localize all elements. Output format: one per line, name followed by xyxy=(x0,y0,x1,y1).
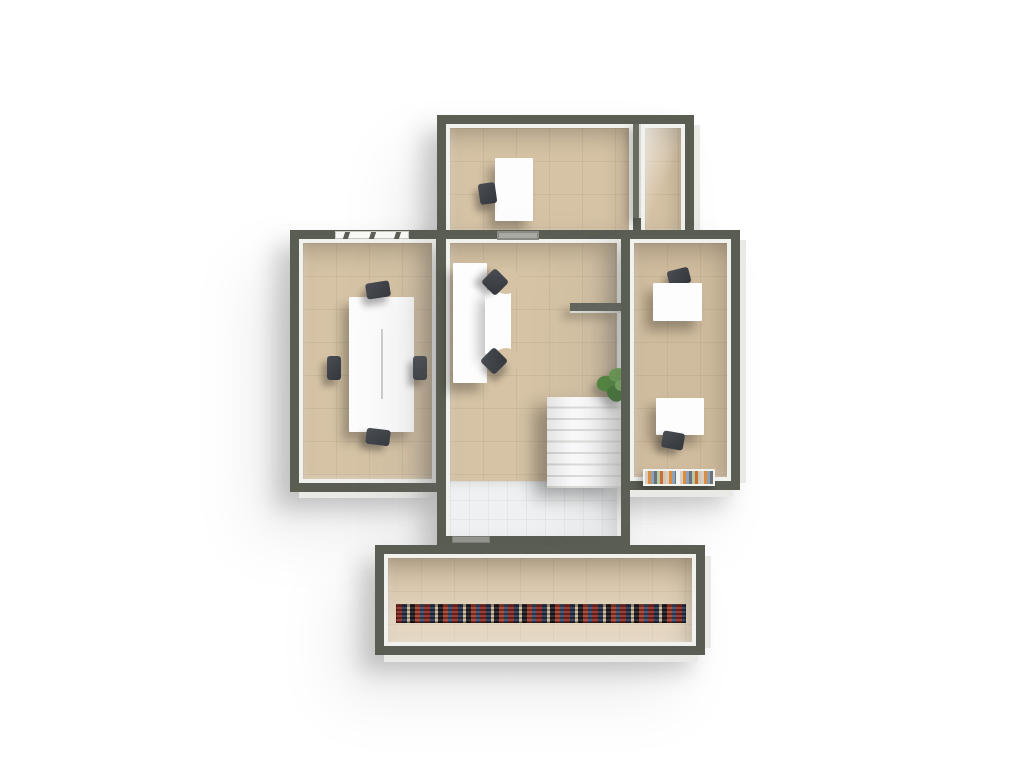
right-office-desk-north xyxy=(653,283,702,321)
block-top-office xyxy=(437,115,694,245)
top-office-desk xyxy=(495,158,533,221)
conference-chair-east xyxy=(413,356,427,380)
book-row-1 xyxy=(645,471,676,484)
wall-outer-face xyxy=(694,125,700,237)
conference-table xyxy=(349,297,414,432)
block-central-hall xyxy=(437,230,630,545)
right-office-desk-south xyxy=(656,398,704,435)
conference-chair-west xyxy=(327,356,341,380)
workstation-desk-extension xyxy=(485,290,511,354)
book-shelf xyxy=(643,469,715,486)
block-terrace xyxy=(375,545,705,655)
wall-outer-face xyxy=(705,556,711,648)
terrace-runner-rug xyxy=(396,604,686,623)
right-office-floor xyxy=(630,239,731,481)
wall-outer-face xyxy=(630,490,733,497)
meeting-room-window xyxy=(335,231,409,239)
left-meeting-room-floor xyxy=(299,239,436,483)
wall-outer-face xyxy=(740,240,746,483)
entry-tile-floor xyxy=(450,481,617,536)
top-office-chair xyxy=(478,182,498,205)
staircase xyxy=(547,397,621,488)
top-office-floor xyxy=(446,124,633,236)
table-seam xyxy=(381,329,383,399)
partition-top-rooms xyxy=(633,124,641,218)
block-left-meeting-room xyxy=(290,230,445,492)
corridor-light-shading xyxy=(645,128,681,232)
block-right-office xyxy=(621,230,740,490)
right-office-chair-south xyxy=(661,430,686,451)
wall-outer-face xyxy=(299,492,437,498)
book-row-2 xyxy=(680,471,713,484)
terrace-floor xyxy=(384,554,696,646)
wall-niche xyxy=(497,231,539,240)
floorplan-canvas xyxy=(0,0,1024,768)
conference-chair-south xyxy=(365,428,391,447)
entry-threshold xyxy=(452,536,490,543)
wall-outer-face xyxy=(384,655,698,662)
top-corridor-floor xyxy=(641,124,685,236)
partition-stub xyxy=(570,303,621,313)
